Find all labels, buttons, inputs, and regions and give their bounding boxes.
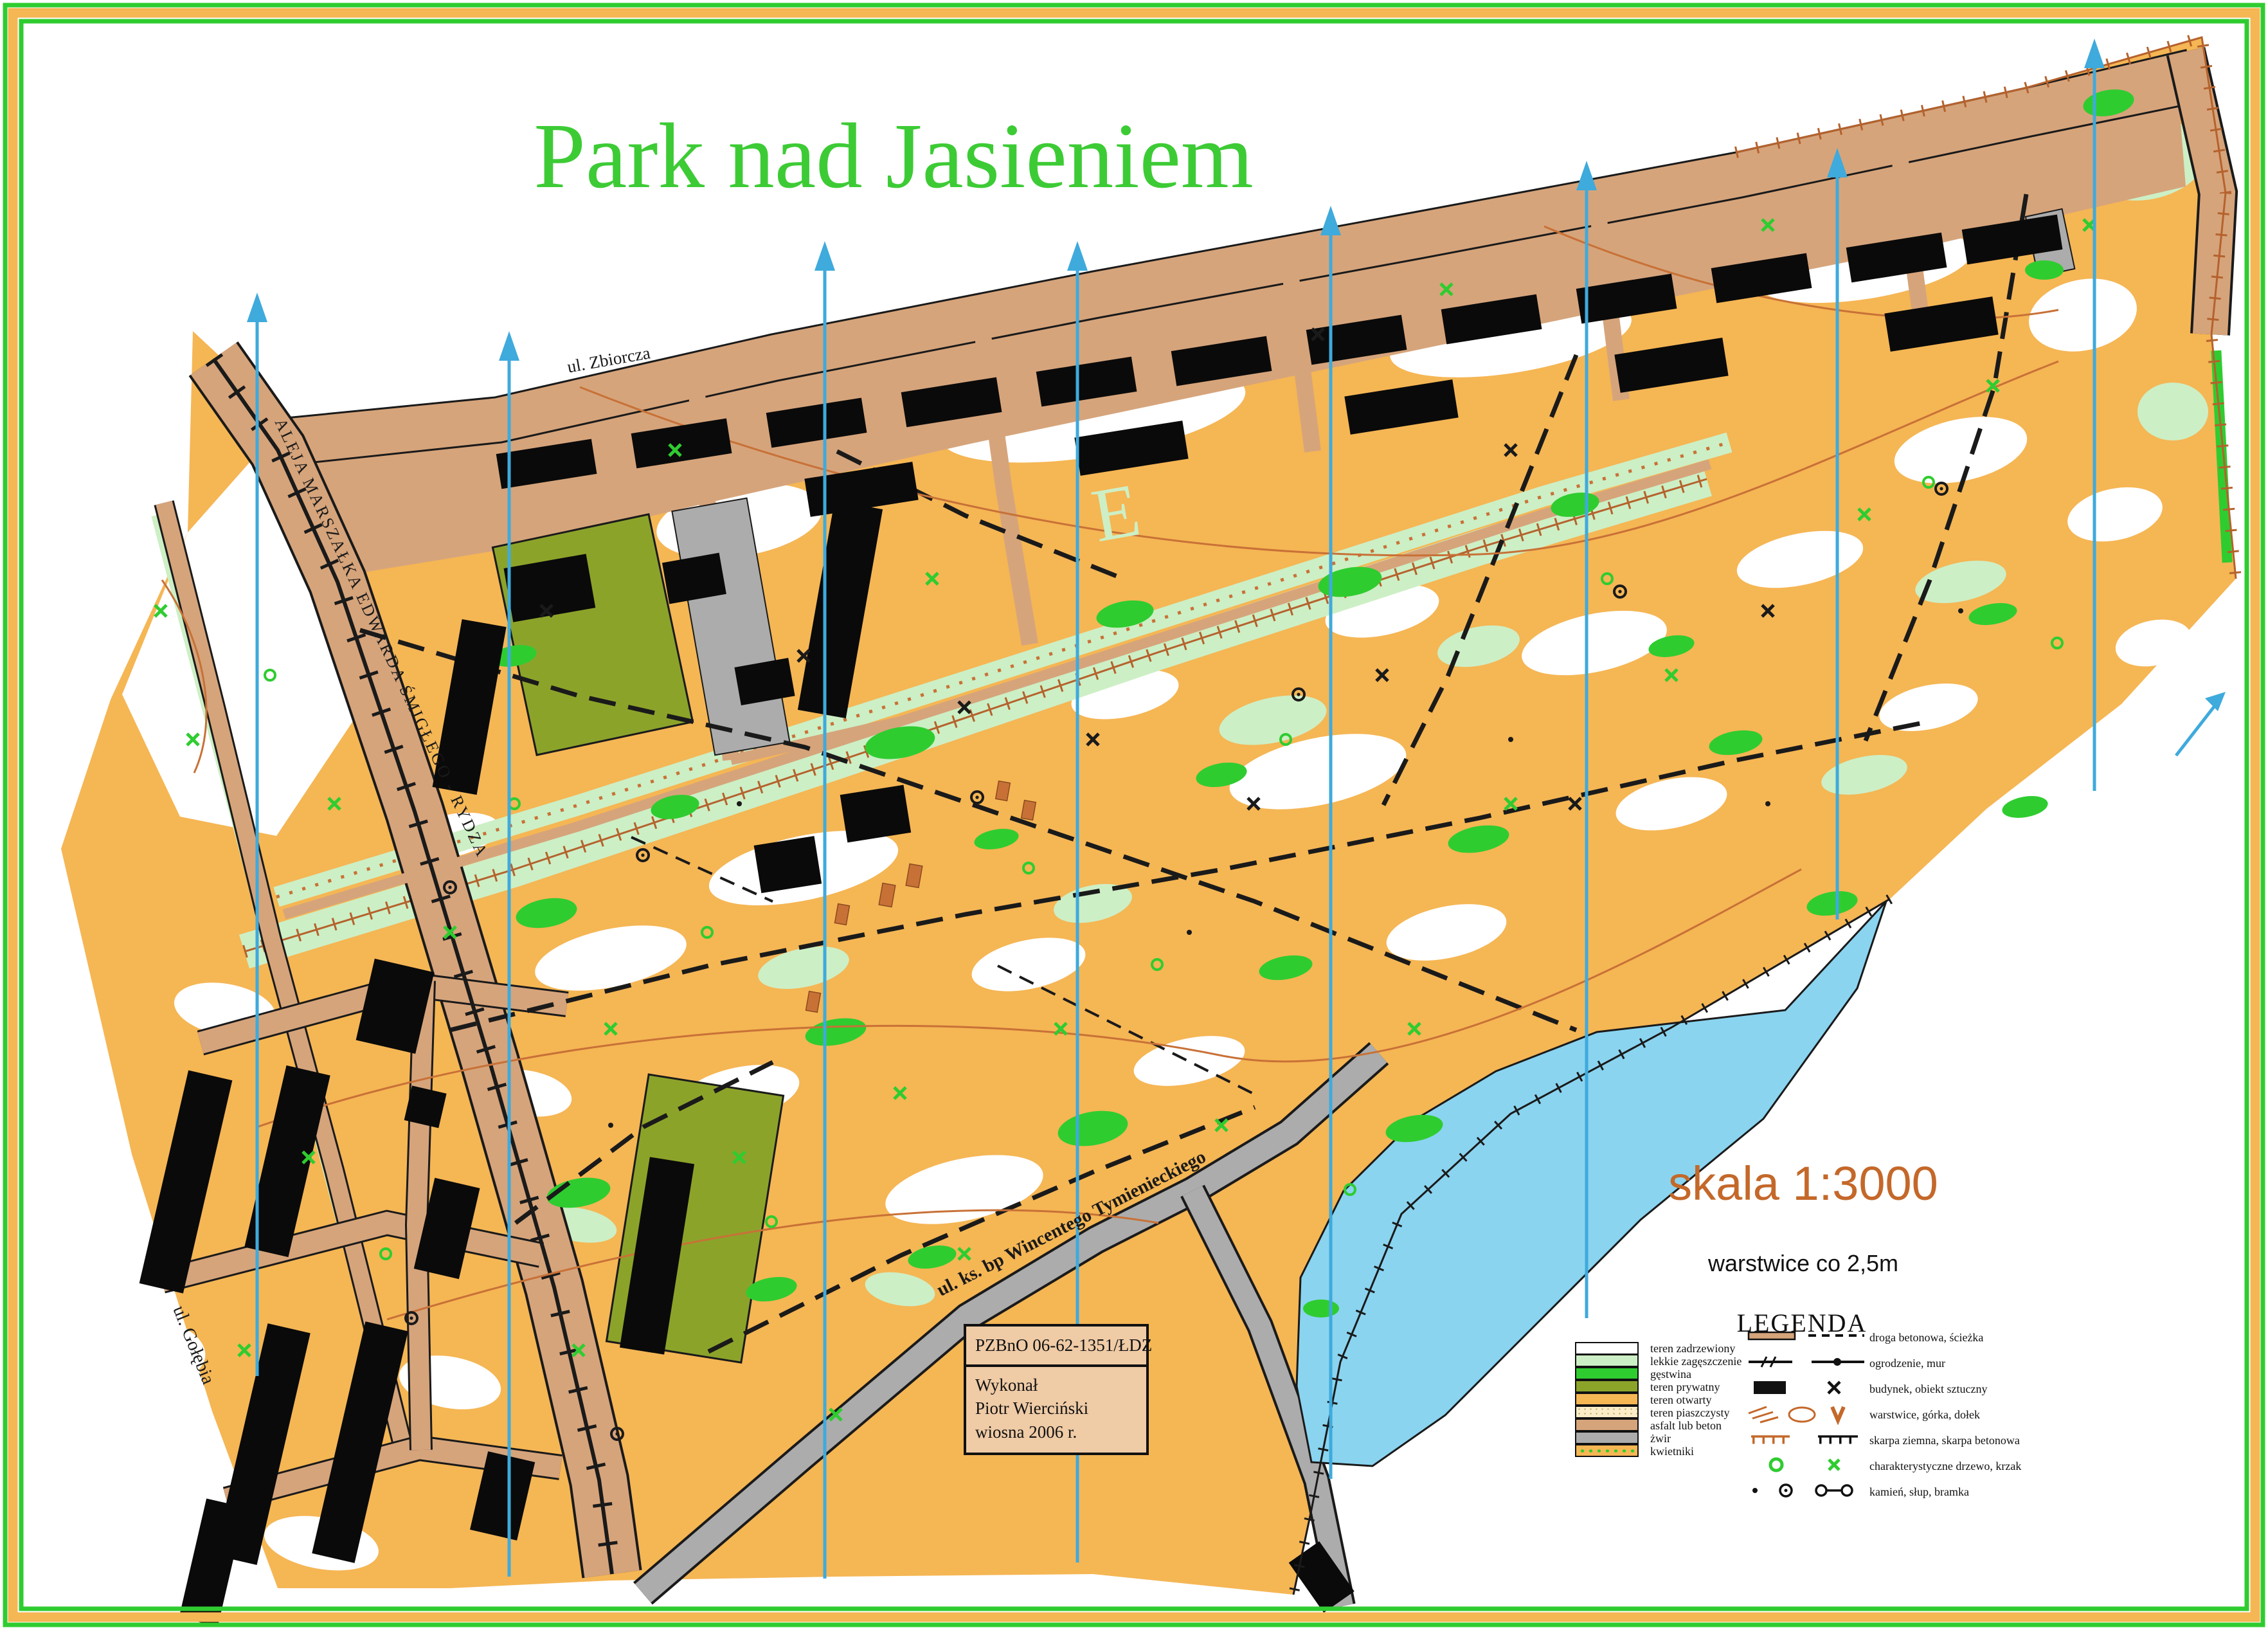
made-by-label: Wykonał xyxy=(975,1373,1137,1397)
legend-terrain-row: teren prywatny xyxy=(1575,1381,1742,1393)
legend-terrain-row: lekkie zagęszczenie xyxy=(1575,1355,1742,1368)
credit-box: PZBnO 06-62-1351/ŁDZ Wykonał Piotr Wierc… xyxy=(964,1324,1149,1455)
legend-terrain-row: asfalt lub beton xyxy=(1575,1419,1742,1432)
map-scale: skala 1:3000 xyxy=(1643,1156,1964,1211)
legend-symbol-row: warstwice, górka, dołek xyxy=(1747,1402,2021,1427)
legend-symbol-row: charakterystyczne drzewo, krzak xyxy=(1747,1453,2021,1479)
terrain-swatch-forest xyxy=(1575,1342,1639,1355)
stone-post-gate-icon xyxy=(1747,1478,1869,1507)
legend-terrain-row: żwir xyxy=(1575,1432,1742,1445)
legend-terrain-row: teren piaszczysty xyxy=(1575,1406,1742,1419)
legend-terrain-row: teren otwarty xyxy=(1575,1393,1742,1406)
legend-terrain-list: teren zadrzewiony lekkie zagęszczenie gę… xyxy=(1575,1342,1742,1458)
license-number: PZBnO 06-62-1351/ŁDZ xyxy=(966,1327,1146,1367)
legend-symbol-row: kamień, słup, bramka xyxy=(1747,1479,2021,1505)
map-sheet: Park nad Jasieniem E ALEJA MARSZAŁKA EDW… xyxy=(0,0,2268,1630)
legend-symbol-row: budynek, obiekt sztuczny xyxy=(1747,1376,2021,1402)
terrain-swatch-sand xyxy=(1575,1406,1639,1418)
escarpment-icon xyxy=(1747,1426,1869,1455)
legend-symbol-row: skarpa ziemna, skarpa betonowa xyxy=(1747,1427,2021,1453)
contour-interval: warstwice co 2,5m xyxy=(1675,1250,1932,1277)
building-object-icon xyxy=(1747,1375,1869,1404)
contours-knoll-pit-icon xyxy=(1747,1400,1869,1429)
legend-symbol-list: droga betonowa, ścieżka ogrodzenie, mur … xyxy=(1747,1325,2021,1505)
legend-terrain-row: kwietniki xyxy=(1575,1445,1742,1458)
terrain-swatch-asphalt xyxy=(1575,1418,1639,1431)
author-block: Wykonał Piotr Wierciński wiosna 2006 r. xyxy=(966,1367,1146,1453)
map-date: wiosna 2006 r. xyxy=(975,1420,1137,1444)
legend-symbol-row: ogrodzenie, mur xyxy=(1747,1350,2021,1376)
terrain-swatch-flowerbed xyxy=(1575,1444,1639,1457)
legend-symbol-row: droga betonowa, ścieżka xyxy=(1747,1325,2021,1350)
terrain-swatch-gravel xyxy=(1575,1431,1639,1444)
tree-bush-icon xyxy=(1747,1452,1869,1481)
legend-terrain-row: gęstwina xyxy=(1575,1368,1742,1381)
page-title: Park nad Jasieniem xyxy=(514,103,1273,210)
fence-wall-icon xyxy=(1747,1349,1869,1378)
terrain-swatch-thicket xyxy=(1575,1367,1639,1380)
legend-terrain-row: teren zadrzewiony xyxy=(1575,1342,1742,1355)
road-path-icon xyxy=(1747,1323,1869,1352)
terrain-swatch-open xyxy=(1575,1393,1639,1406)
terrain-swatch-light-green xyxy=(1575,1354,1639,1367)
terrain-swatch-private xyxy=(1575,1380,1639,1393)
author-name: Piotr Wierciński xyxy=(975,1397,1137,1420)
